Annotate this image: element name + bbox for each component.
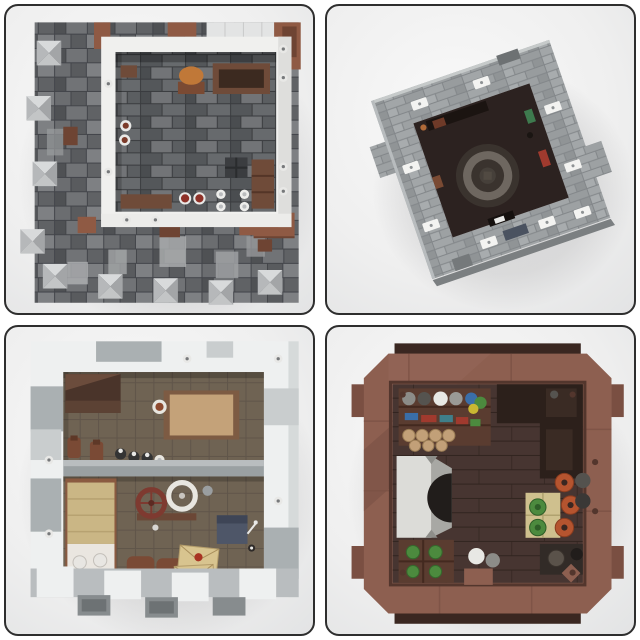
room-divider-wall (63, 460, 264, 476)
photo-collage-grid (0, 0, 640, 640)
roast-on-spit (178, 66, 205, 94)
bed (65, 478, 116, 576)
round-white-table (468, 548, 484, 564)
photo-two-room-interior (4, 325, 315, 636)
tavern-illustration (327, 327, 634, 634)
photo-tower-top (325, 4, 636, 315)
castle-roof-illustration (6, 6, 313, 313)
wooden-table (152, 390, 239, 439)
greens-crates (399, 540, 454, 583)
upper-room (63, 372, 264, 468)
interior-rooms-illustration (6, 327, 313, 634)
tower-top-illustration (327, 6, 634, 313)
bottom-notch (464, 569, 493, 585)
stone-hearth (397, 456, 452, 538)
photo-castle-roof-level (4, 4, 315, 315)
photo-tavern-interior (325, 325, 636, 636)
round-gray-table (486, 553, 500, 567)
dark-cupboard (65, 374, 120, 413)
